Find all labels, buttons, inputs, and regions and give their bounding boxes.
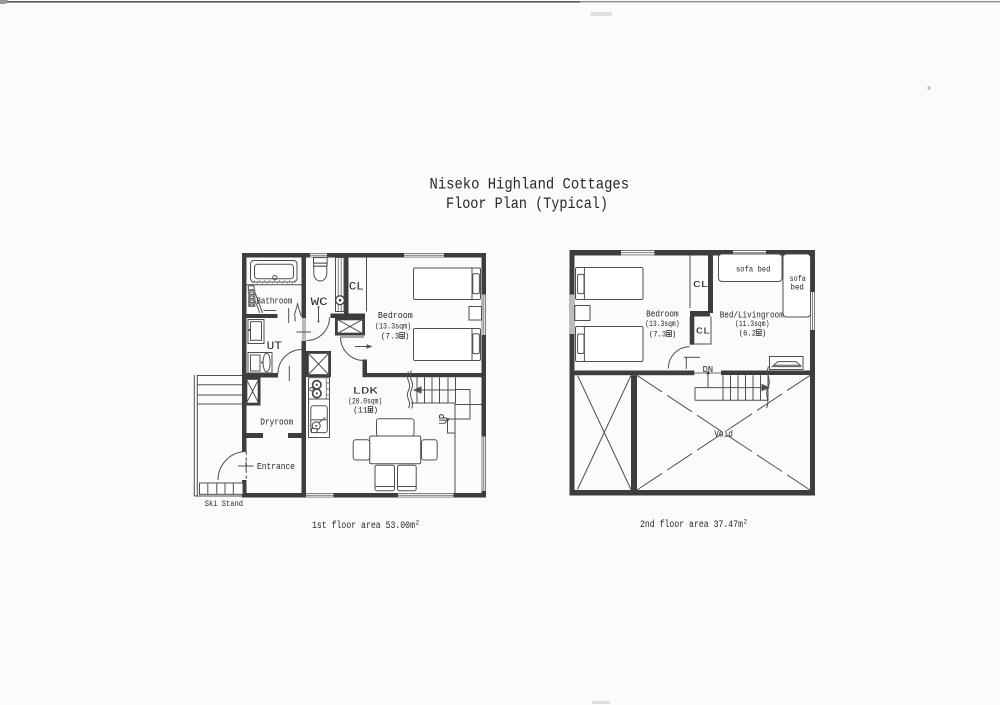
svg-text:(13.3sqm): (13.3sqm) <box>375 324 411 332</box>
svg-text:Dryroom: Dryroom <box>260 418 293 428</box>
svg-text:(20.0sqm): (20.0sqm) <box>348 398 382 406</box>
svg-text:UP: UP <box>439 413 451 424</box>
svg-text:): ) <box>373 407 378 415</box>
svg-text:(6.2: (6.2 <box>739 331 756 339</box>
svg-text:bed: bed <box>791 283 804 293</box>
svg-text:): ) <box>762 331 767 339</box>
svg-text:DN: DN <box>703 365 714 375</box>
svg-text:): ) <box>672 331 677 339</box>
svg-text:Bedroom: Bedroom <box>646 309 679 319</box>
svg-text:CL: CL <box>693 279 709 290</box>
svg-text:Bed/Livingroom: Bed/Livingroom <box>720 310 784 320</box>
svg-text:2: 2 <box>416 520 420 527</box>
svg-text:CL: CL <box>349 281 364 293</box>
svg-text:Niseko Highland Cottages: Niseko Highland Cottages <box>430 175 630 193</box>
svg-text:WC: WC <box>311 297 329 309</box>
svg-text:): ) <box>405 333 410 341</box>
svg-text:Floor Plan (Typical): Floor Plan (Typical) <box>446 195 608 213</box>
svg-text:Bedroom: Bedroom <box>378 311 413 321</box>
svg-text:LDK: LDK <box>353 386 378 397</box>
svg-text:Bathroom: Bathroom <box>256 296 292 306</box>
svg-text:2: 2 <box>744 519 748 526</box>
svg-text:(7.3: (7.3 <box>381 333 400 341</box>
svg-text:(7.3: (7.3 <box>649 331 666 339</box>
svg-text:sofa: sofa <box>790 274 806 284</box>
svg-text:Entrance: Entrance <box>257 462 295 472</box>
svg-text:CL: CL <box>696 326 711 337</box>
svg-text:Void: Void <box>714 428 733 439</box>
svg-text:(11: (11 <box>353 407 368 415</box>
svg-text:2nd floor area 37.47m: 2nd floor area 37.47m <box>640 519 743 530</box>
svg-text:Ski Stand: Ski Stand <box>205 499 243 509</box>
svg-text:(13.3sqm): (13.3sqm) <box>645 321 679 329</box>
svg-text:sofa bed: sofa bed <box>736 264 770 274</box>
svg-text:UT: UT <box>267 341 283 353</box>
svg-text:1st floor area 53.00m: 1st floor area 53.00m <box>312 520 415 531</box>
svg-text:(11.3sqm): (11.3sqm) <box>735 321 769 329</box>
